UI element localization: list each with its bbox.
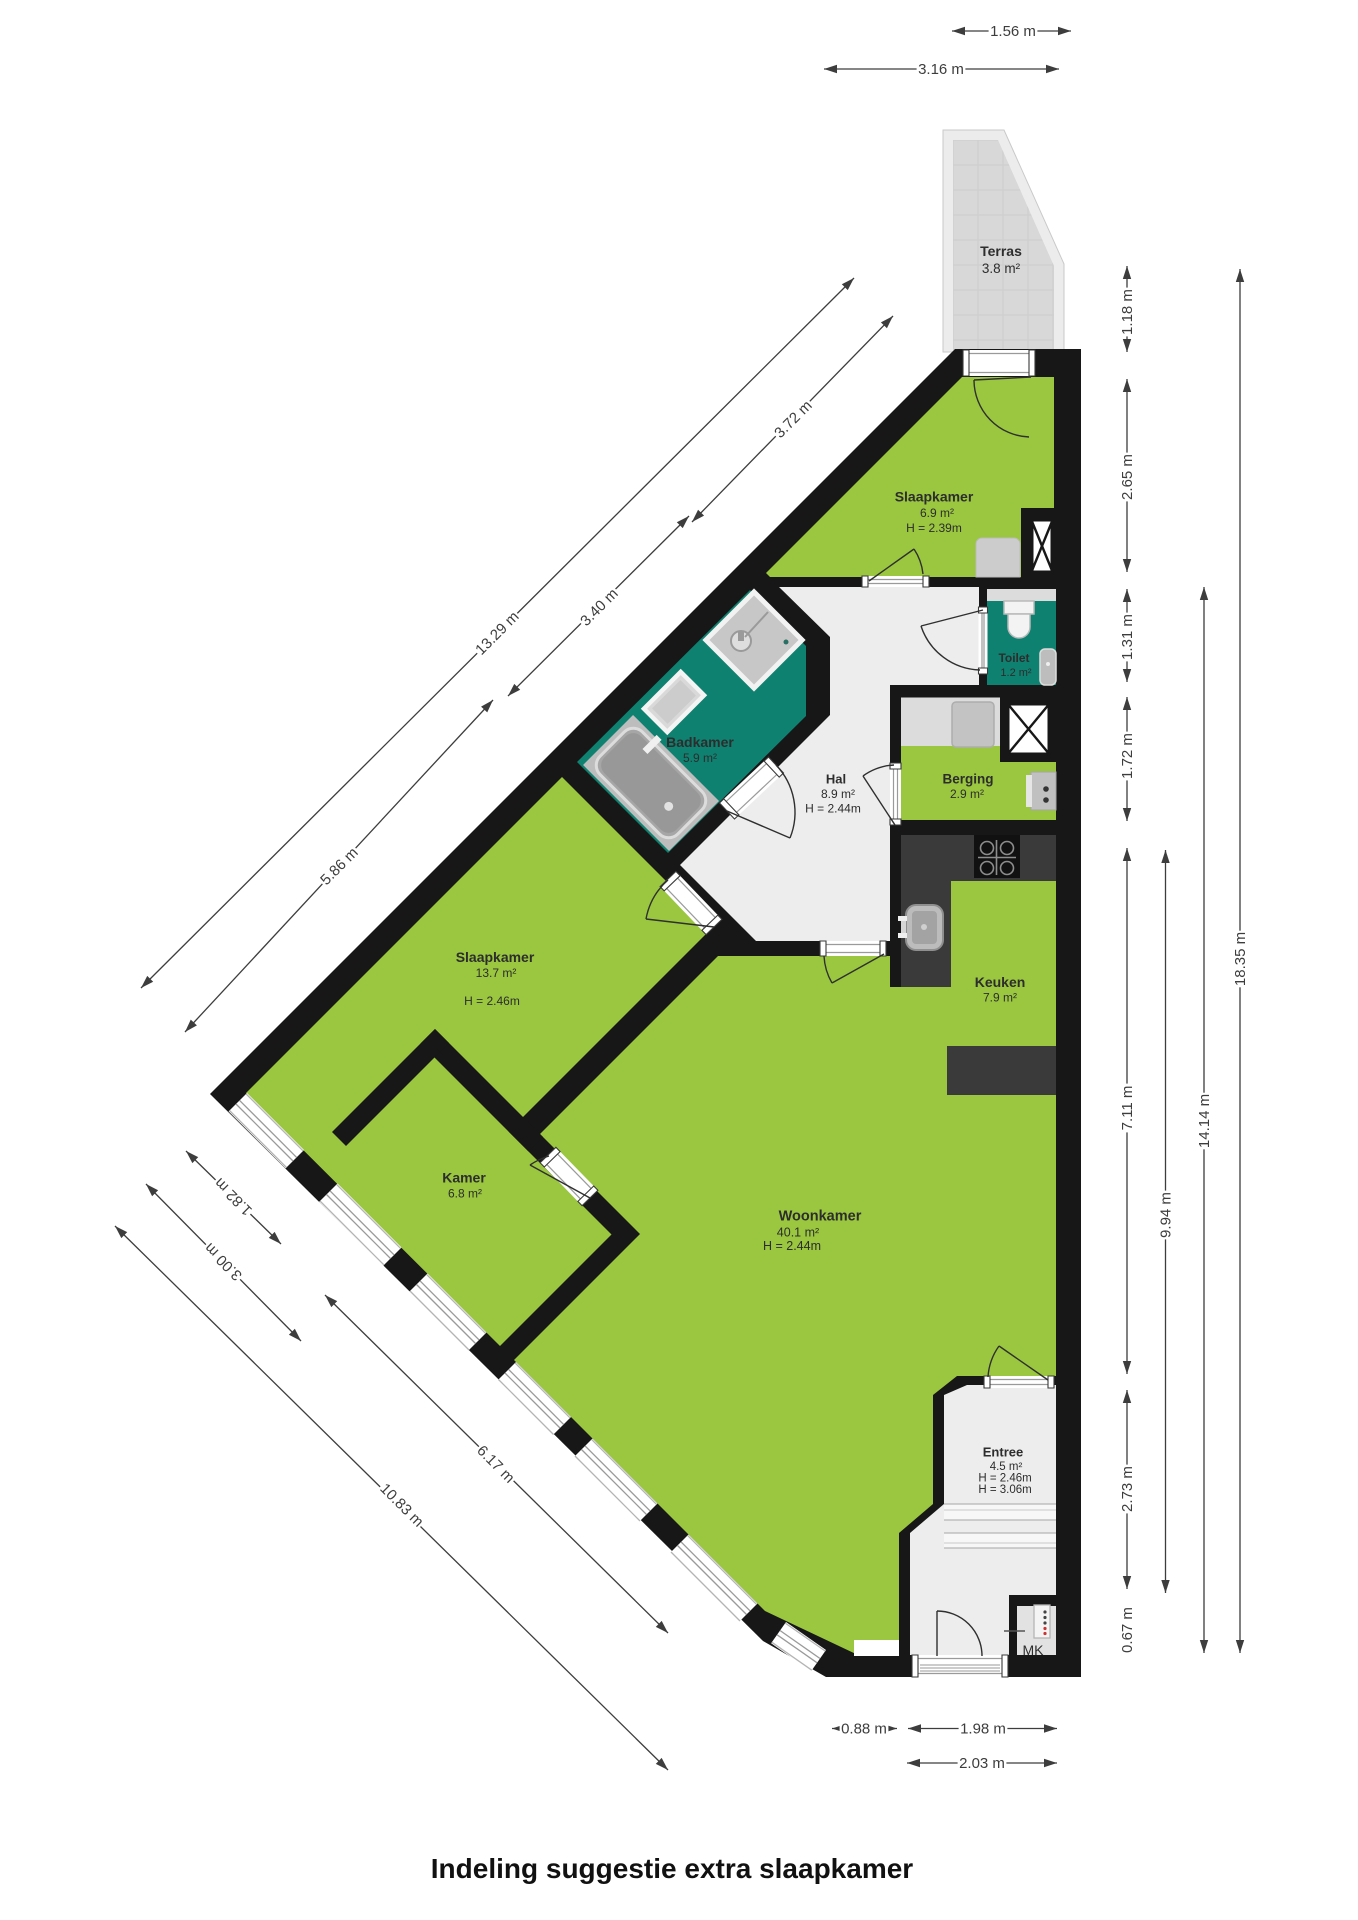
svg-text:Entree: Entree xyxy=(983,1445,1023,1460)
svg-text:5.9 m²: 5.9 m² xyxy=(683,751,717,765)
svg-text:1.98 m: 1.98 m xyxy=(960,1721,1006,1738)
svg-text:H = 2.46m: H = 2.46m xyxy=(464,994,520,1008)
svg-text:Toilet: Toilet xyxy=(998,651,1029,665)
svg-text:1.2 m²: 1.2 m² xyxy=(1000,667,1032,679)
svg-text:2.73 m: 2.73 m xyxy=(1119,1466,1136,1512)
svg-text:6.8 m²: 6.8 m² xyxy=(448,1187,482,1201)
svg-text:1.31 m: 1.31 m xyxy=(1119,614,1136,660)
svg-text:Terras: Terras xyxy=(980,243,1022,259)
svg-text:Badkamer: Badkamer xyxy=(666,734,734,750)
svg-text:1.56 m: 1.56 m xyxy=(990,23,1036,40)
svg-text:2.65 m: 2.65 m xyxy=(1119,454,1136,500)
svg-text:40.1 m²: 40.1 m² xyxy=(777,1226,819,1240)
svg-text:MK: MK xyxy=(1023,1642,1045,1658)
svg-text:2.9 m²: 2.9 m² xyxy=(950,787,984,801)
svg-text:H = 3.06m: H = 3.06m xyxy=(978,1484,1031,1496)
svg-text:H = 2.44m: H = 2.44m xyxy=(805,802,861,816)
svg-text:14.14 m: 14.14 m xyxy=(1196,1094,1213,1148)
svg-text:0.88 m: 0.88 m xyxy=(841,1721,887,1738)
svg-text:Kamer: Kamer xyxy=(442,1170,486,1186)
svg-text:0.67 m: 0.67 m xyxy=(1119,1607,1136,1653)
svg-text:Woonkamer: Woonkamer xyxy=(779,1209,862,1225)
svg-text:Hal: Hal xyxy=(826,772,846,787)
svg-text:Berging: Berging xyxy=(942,772,993,787)
svg-text:4.5 m²: 4.5 m² xyxy=(990,1461,1023,1473)
svg-text:H = 2.44m: H = 2.44m xyxy=(763,1239,821,1253)
svg-text:9.94 m: 9.94 m xyxy=(1158,1192,1175,1238)
svg-text:8.9 m²: 8.9 m² xyxy=(821,787,855,801)
svg-text:H = 2.39m: H = 2.39m xyxy=(906,521,962,535)
svg-text:Keuken: Keuken xyxy=(975,974,1026,990)
svg-text:H = 2.46m: H = 2.46m xyxy=(978,1473,1031,1485)
svg-text:2.03 m: 2.03 m xyxy=(959,1755,1005,1772)
svg-text:3.16 m: 3.16 m xyxy=(918,61,964,78)
svg-text:13.7 m²: 13.7 m² xyxy=(476,966,517,980)
svg-text:1.18 m: 1.18 m xyxy=(1119,289,1136,335)
svg-text:Slaapkamer: Slaapkamer xyxy=(456,949,535,965)
svg-text:3.8 m²: 3.8 m² xyxy=(982,261,1021,276)
svg-text:Slaapkamer: Slaapkamer xyxy=(895,489,974,505)
svg-text:18.35 m: 18.35 m xyxy=(1232,932,1249,986)
svg-text:7.9 m²: 7.9 m² xyxy=(983,991,1017,1005)
svg-text:6.9 m²: 6.9 m² xyxy=(920,506,954,520)
svg-text:Indeling suggestie extra slaap: Indeling suggestie extra slaapkamer xyxy=(431,1853,914,1884)
svg-text:1.72 m: 1.72 m xyxy=(1119,733,1136,779)
svg-text:7.11 m: 7.11 m xyxy=(1119,1086,1136,1131)
